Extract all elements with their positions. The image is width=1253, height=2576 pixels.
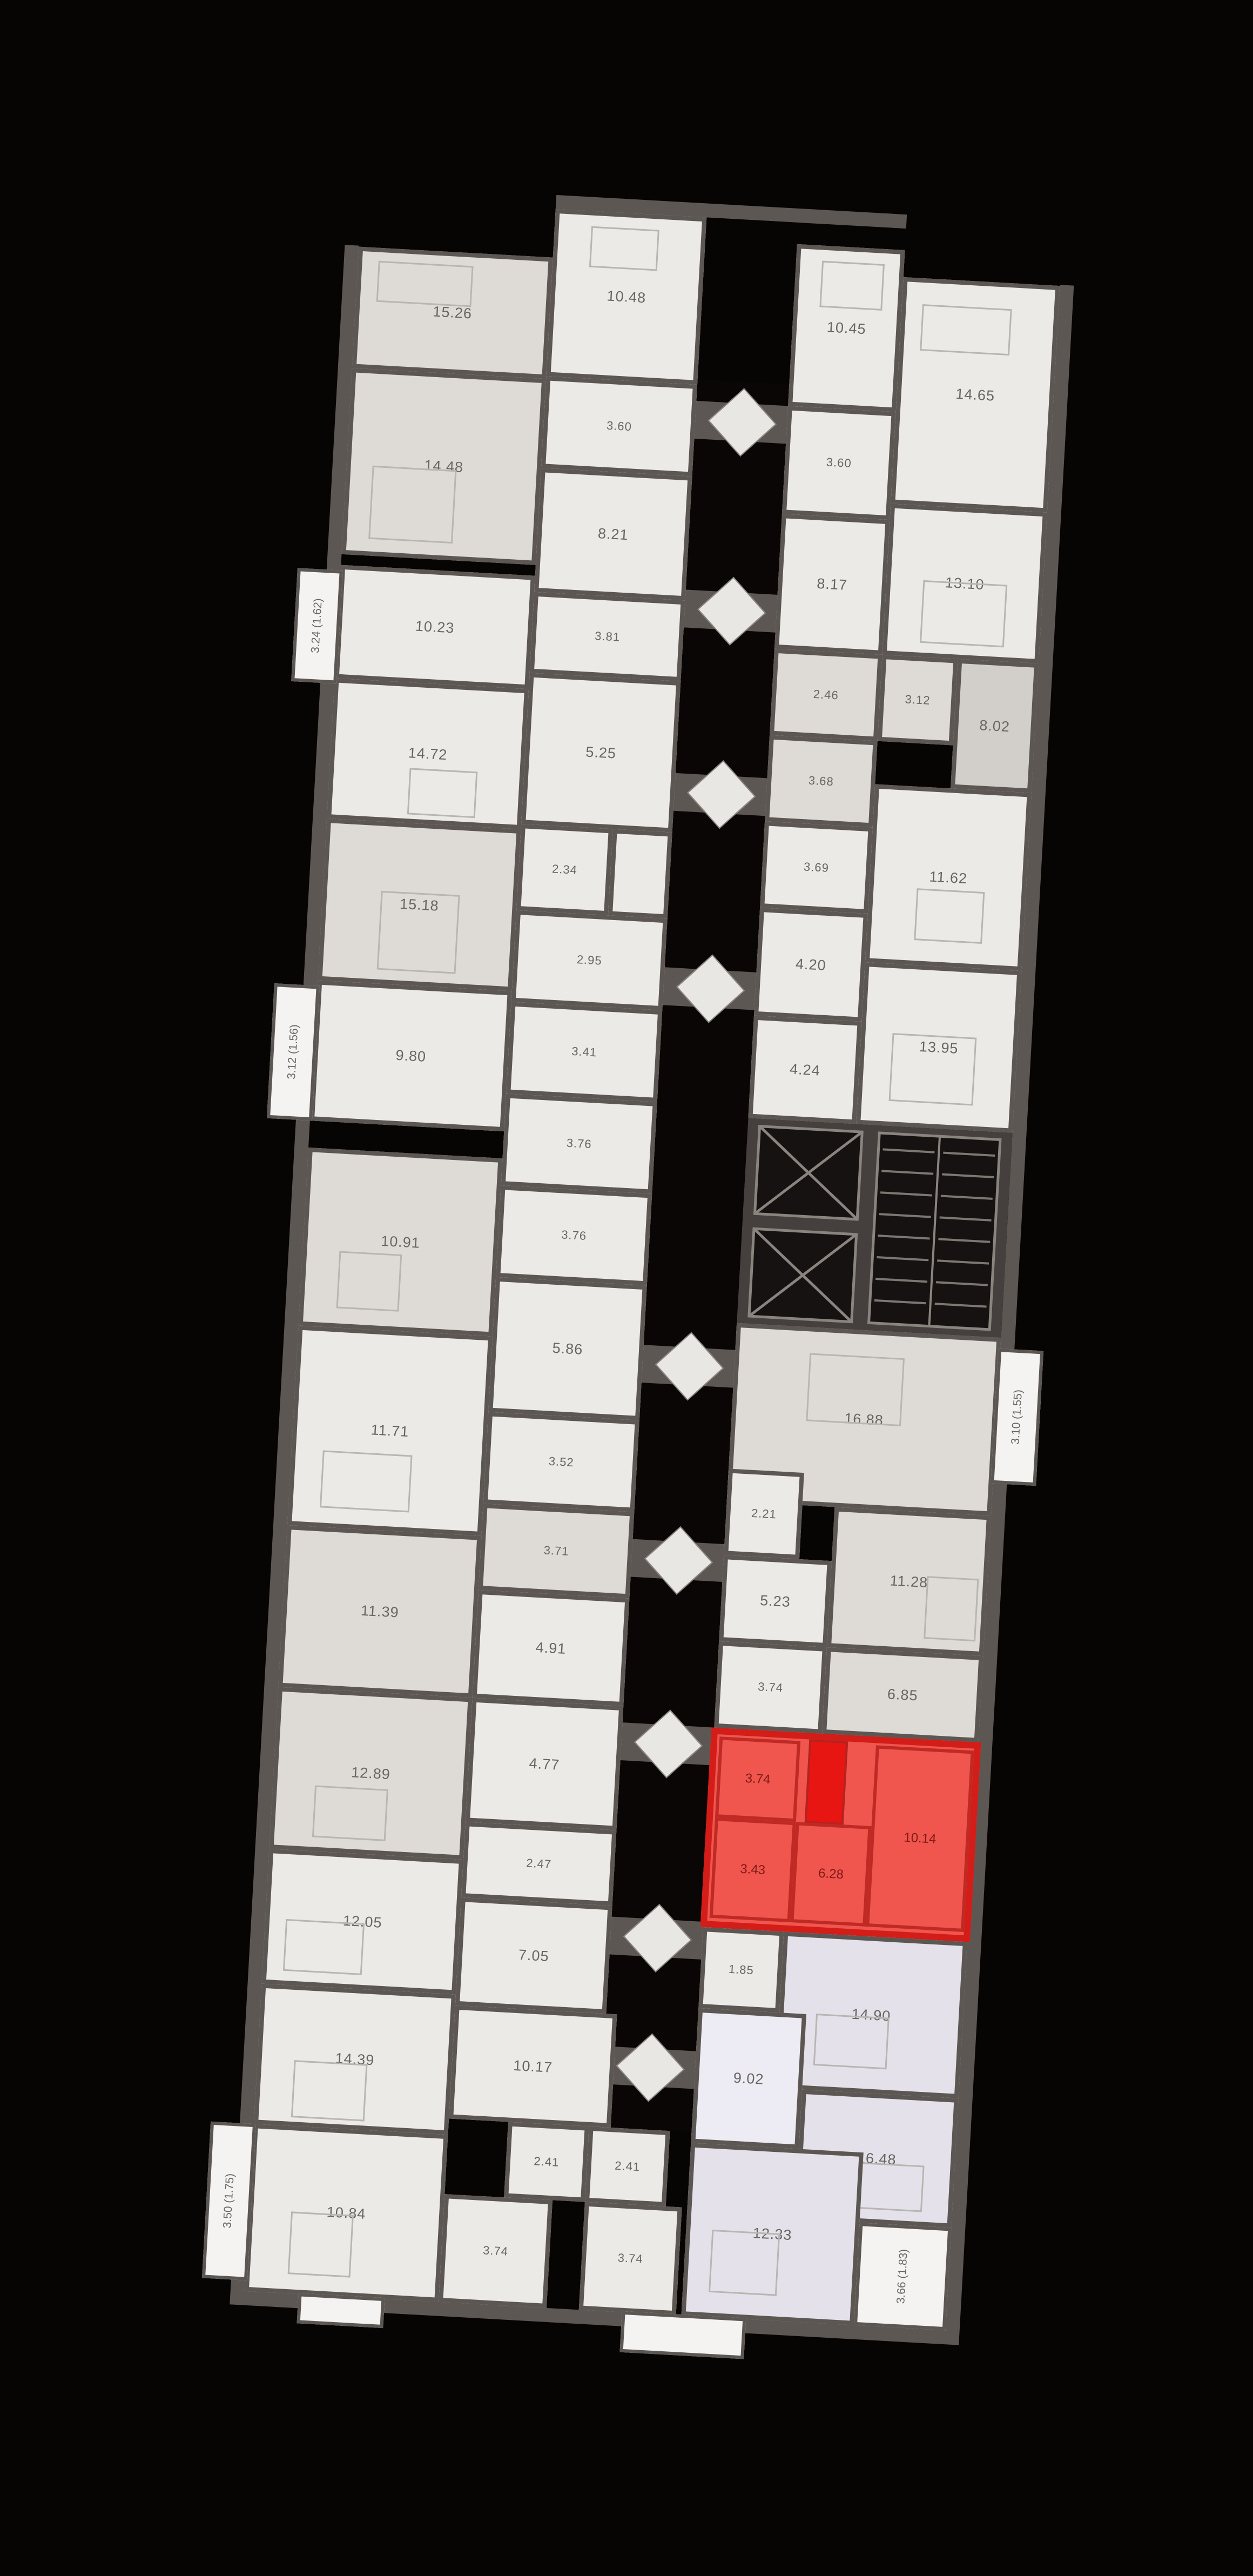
room-area-label: 4.20	[795, 955, 826, 974]
room: 3.71	[479, 1504, 634, 1598]
room: 11.62	[865, 784, 1032, 971]
room-area-label: 2.46	[813, 687, 839, 703]
building-floor-plan: 15.26 14.48 10.23 14.72 15.18 9.80 10.91…	[245, 198, 1063, 2331]
room-area-label: 14.72	[408, 744, 448, 763]
room-area-label: 10.48	[607, 287, 646, 306]
room: 14.72	[327, 678, 529, 829]
facade-step	[904, 212, 1080, 286]
floor-plan-canvas: 15.26 14.48 10.23 14.72 15.18 9.80 10.91…	[0, 0, 1253, 2576]
desk-icon	[914, 888, 985, 944]
room-area-label: 14.65	[955, 385, 995, 404]
table-icon	[819, 261, 885, 311]
stairs-icon	[869, 1133, 1000, 1330]
room: 3.81	[530, 592, 685, 681]
room-area-label: 3.43	[740, 1862, 766, 1879]
room: 12.05	[262, 1849, 463, 1995]
room: 3.76	[496, 1185, 652, 1285]
room: 6.28	[790, 1822, 871, 1927]
chair-icon	[312, 1786, 388, 1841]
room: 15.18	[318, 819, 521, 991]
room: 5.25	[521, 673, 681, 832]
bed-icon	[291, 2060, 368, 2121]
balcony	[619, 2311, 746, 2359]
room: 2.95	[511, 910, 668, 1010]
room-area-label: 11.28	[890, 1572, 928, 1591]
balcony: 3.50 (1.75)	[202, 2122, 256, 2280]
room: 10.23	[335, 565, 535, 689]
room-area-label: 3.12	[905, 692, 931, 708]
room: 12.89	[269, 1687, 472, 1860]
room-area-label: 2.41	[534, 2154, 560, 2170]
room: 3.12	[878, 655, 958, 746]
chair-icon	[336, 1251, 402, 1311]
room-area-label: 9.80	[395, 1046, 427, 1065]
room-area-label: 10.23	[415, 618, 455, 636]
room: 13.95	[856, 962, 1021, 1133]
room-area-label: 5.23	[759, 1592, 791, 1611]
room: 8.17	[774, 514, 890, 655]
room-area-label: 10.91	[380, 1232, 420, 1251]
room-area-label: 12.89	[351, 1764, 390, 1783]
table-icon	[589, 226, 659, 271]
room: 2.46	[770, 649, 883, 741]
table-icon	[283, 1919, 365, 1975]
bed-icon	[288, 2211, 354, 2277]
room: 2.34	[516, 824, 613, 915]
sofa-icon	[376, 261, 474, 307]
room-area-label: 11.62	[929, 868, 968, 887]
room: 10.48	[546, 209, 706, 385]
shaft	[805, 1739, 848, 1825]
room-area-label: 10.14	[904, 1830, 937, 1847]
room: 6.85	[822, 1647, 983, 1742]
room: 4.20	[754, 908, 868, 1022]
room-area-label: 3.74	[758, 1680, 784, 1695]
bed-icon	[920, 580, 1007, 648]
balcony-area-label: 3.50 (1.75)	[221, 2173, 237, 2229]
table-icon	[320, 1450, 413, 1512]
room-area-label: 2.21	[751, 1506, 777, 1522]
balcony: 3.10 (1.55)	[991, 1349, 1043, 1486]
room-area-label: 7.05	[518, 1947, 549, 1965]
room-area-label: 10.45	[826, 319, 866, 338]
balcony: 3.24 (1.62)	[291, 568, 343, 683]
room: 3.41	[506, 1002, 662, 1102]
room: 2.41	[585, 2126, 670, 2206]
room: 12.33	[681, 2143, 863, 2325]
room-area-label: 8.21	[597, 525, 629, 544]
room-area-label: 10.17	[513, 2057, 553, 2076]
room-area-label: 2.34	[551, 862, 577, 877]
room: 3.52	[483, 1412, 639, 1512]
room-area-label: 3.69	[803, 860, 829, 875]
bed-icon	[709, 2230, 780, 2296]
room-area-label: 3.68	[808, 774, 834, 789]
room-area-label: 3.60	[606, 419, 632, 434]
balcony-area-label: 3.66 (1.83)	[894, 2249, 911, 2304]
room: 11.28	[827, 1507, 991, 1656]
room: 13.10	[883, 504, 1047, 663]
room-area-label: 3.81	[595, 629, 621, 645]
balcony	[297, 2293, 385, 2328]
room: 9.80	[310, 980, 512, 1131]
vent-shaft	[697, 217, 798, 390]
room: 10.84	[245, 2124, 448, 2302]
room: 2.21	[724, 1468, 804, 1559]
room: 2.41	[504, 2122, 589, 2202]
room: 15.26	[352, 247, 553, 379]
room-area-label: 1.85	[728, 1962, 754, 1978]
bed-icon	[889, 1033, 977, 1106]
bed-icon	[806, 1353, 905, 1426]
room: 5.86	[488, 1277, 647, 1420]
room: 4.91	[473, 1590, 630, 1706]
room: 3.43	[710, 1817, 796, 1922]
room-area-label: 3.74	[745, 1771, 771, 1788]
room-area-label: 3.41	[571, 1044, 597, 1060]
room-area-label: 3.74	[482, 2243, 508, 2259]
room-area-label: 3.52	[548, 1454, 574, 1470]
highlighted-apartment[interactable]: 3.74 3.43 6.28 10.14	[700, 1727, 981, 1942]
room: 14.65	[891, 277, 1060, 513]
chair-icon	[924, 1576, 979, 1641]
room: 3.74	[439, 2194, 553, 2308]
room: 2.47	[461, 1822, 616, 1906]
room-area-label: 5.25	[585, 743, 617, 762]
room-area-label: 3.60	[826, 455, 852, 471]
room: 3.69	[760, 821, 873, 914]
room: 11.39	[278, 1525, 481, 1698]
room-area-label: 6.85	[887, 1686, 918, 1704]
room: 10.91	[299, 1148, 503, 1337]
room: 3.68	[765, 735, 878, 827]
balcony: 3.66 (1.83)	[854, 2223, 951, 2330]
balcony: 3.12 (1.56)	[267, 983, 320, 1121]
room-area-label: 3.74	[617, 2251, 643, 2266]
bed-icon	[368, 466, 456, 544]
room: 10.17	[449, 2005, 617, 2128]
room-area-label: 2.47	[526, 1856, 552, 1872]
room-area-label: 4.91	[535, 1639, 567, 1657]
room: 4.77	[466, 1698, 623, 1830]
room: 5.23	[719, 1555, 832, 1647]
room-area-label: 3.76	[566, 1136, 592, 1152]
facade-step	[342, 181, 556, 257]
room-area-label: 3.76	[561, 1227, 587, 1243]
room-area-label: 6.28	[818, 1866, 844, 1883]
room: 1.85	[698, 1927, 784, 2013]
room: 10.14	[866, 1745, 974, 1932]
room: 3.60	[782, 406, 896, 520]
room: 4.24	[748, 1016, 861, 1124]
room-area-label: 3.71	[543, 1543, 569, 1559]
room-area-label: 2.95	[576, 952, 602, 968]
room-area-label: 11.71	[370, 1421, 409, 1440]
room: 14.39	[254, 1984, 456, 2135]
room-area-label: 5.86	[552, 1339, 583, 1358]
room-area-label: 8.17	[817, 575, 848, 593]
room-area-label: 4.77	[529, 1755, 560, 1773]
room: 3.74	[714, 1641, 827, 1734]
bed-icon	[377, 891, 460, 974]
room-area-label: 8.02	[979, 717, 1010, 735]
table-icon	[407, 768, 478, 818]
room: 8.21	[534, 468, 692, 600]
room: 14.48	[341, 368, 546, 565]
room-area-label: 11.39	[360, 1602, 399, 1621]
room-area-label: 9.02	[733, 2069, 764, 2088]
room: 3.74	[579, 2202, 682, 2316]
balcony-area-label: 3.12 (1.56)	[285, 1024, 301, 1080]
room: 3.60	[541, 376, 697, 476]
room: 7.05	[455, 1897, 612, 2014]
room: 3.74	[715, 1736, 800, 1822]
closet	[608, 829, 672, 919]
room: 11.71	[287, 1325, 493, 1536]
room-area-label: 4.24	[789, 1061, 820, 1079]
chair-icon	[813, 2014, 890, 2069]
balcony-area-label: 3.24 (1.62)	[309, 598, 325, 654]
room: 9.02	[691, 2008, 806, 2149]
wardrobe-icon	[920, 304, 1012, 355]
room: 3.76	[501, 1094, 657, 1193]
room: 10.45	[788, 244, 905, 412]
room-area-label: 2.41	[615, 2159, 641, 2175]
room: 8.02	[951, 659, 1039, 793]
balcony-area-label: 3.10 (1.55)	[1009, 1390, 1025, 1445]
building-core	[737, 1118, 1012, 1338]
